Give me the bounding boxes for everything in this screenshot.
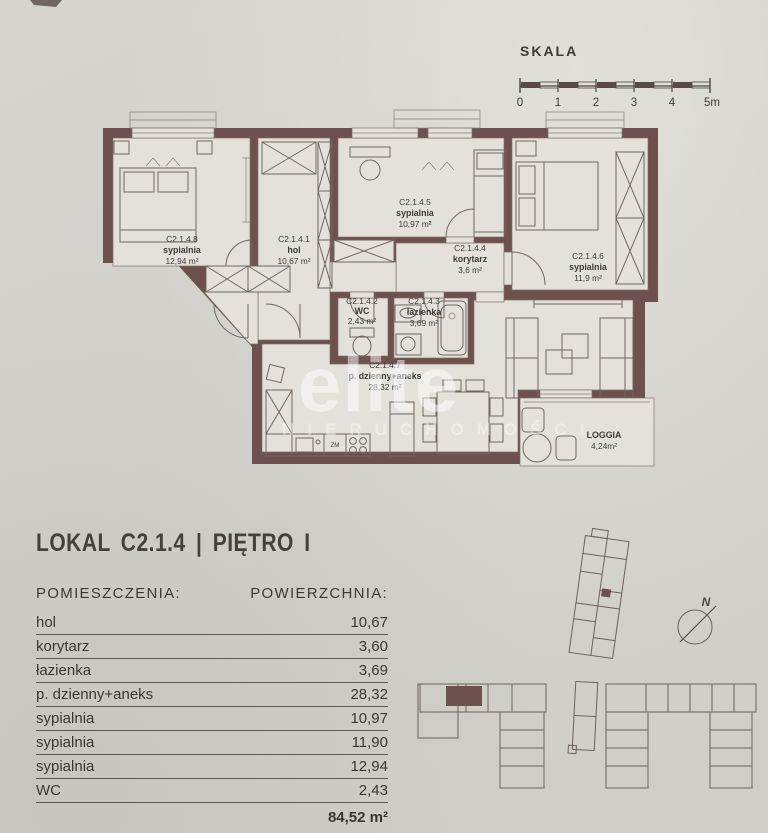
site-building-right — [606, 684, 756, 788]
room-id: C2.1.4.5 — [399, 197, 431, 207]
header-rooms: POMIESZCZENIA: — [36, 585, 181, 602]
floor-plan-sheet: SKALA 0 1 2 3 4 5m — [0, 0, 768, 833]
total-area: 84,52 m² — [36, 803, 388, 826]
scale-tick-3: 3 — [631, 97, 637, 109]
room-area-cell: 2,43 — [359, 782, 388, 799]
room-id: C2.1.4.7 — [369, 360, 401, 370]
table-row: WC 2,43 — [36, 779, 388, 803]
room-name: p. dzienny+aneks — [348, 371, 421, 381]
room-name-cell: hol — [36, 614, 56, 631]
room-area: 2,43 m² — [348, 316, 377, 326]
room-id: C2.1.4.2 — [346, 296, 378, 306]
room-area: 11,9 m² — [574, 273, 602, 283]
room-name: sypialnia — [569, 262, 607, 272]
table-row: łazienka 3,69 — [36, 659, 388, 683]
room-name-cell: sypialnia — [36, 734, 94, 751]
room-id: C2.1.4.4 — [454, 243, 486, 253]
north-label: N — [702, 595, 711, 609]
scale-tick-1: 1 — [555, 97, 561, 109]
room-name-cell: sypialnia — [36, 758, 94, 775]
table-header: POMIESZCZENIA: POWIERZCHNIA: — [36, 585, 388, 602]
north-arrow-icon: N — [678, 595, 716, 644]
table-row: sypialnia 10,97 — [36, 707, 388, 731]
scale-title: SKALA — [520, 43, 578, 59]
page-title: LOKAL C2.1.4 | PIĘTRO I — [36, 530, 311, 558]
room-name-cell: łazienka — [36, 662, 91, 679]
room-id: C2.1.4.1 — [278, 234, 310, 244]
dishwasher-label: ZM — [331, 442, 340, 449]
room-area: 10,67 m² — [277, 256, 310, 266]
table-row: korytarz 3,60 — [36, 635, 388, 659]
room-area-cell: 10,97 — [350, 710, 388, 727]
room-name: sypialnia — [396, 208, 434, 218]
room-name-cell: WC — [36, 782, 61, 799]
site-building-tall — [569, 528, 630, 659]
room-name: hol — [287, 245, 300, 255]
room-area-cell: 12,94 — [350, 758, 388, 775]
table-row: sypialnia 12,94 — [36, 755, 388, 779]
room-name-cell: p. dzienny+aneks — [36, 686, 153, 703]
loggia-area: 4,24m² — [591, 441, 617, 451]
room-name: sypialnia — [163, 245, 201, 255]
photo-edge-mark — [30, 0, 62, 7]
room-area: 12,94 m² — [165, 256, 198, 266]
room-id: C2.1.4.6 — [572, 251, 604, 261]
room-name-cell: korytarz — [36, 638, 89, 655]
room-area: 3,69 m² — [410, 318, 439, 328]
room-area-cell: 28,32 — [350, 686, 388, 703]
room-name: WC — [355, 306, 370, 316]
table-row: sypialnia 11,90 — [36, 731, 388, 755]
scale-tick-4: 4 — [669, 97, 676, 109]
area-table: POMIESZCZENIA: POWIERZCHNIA: hol 10,67 k… — [36, 585, 388, 826]
header-areas: POWIERZCHNIA: — [250, 585, 388, 602]
scale-bar: SKALA 0 1 2 3 4 5m — [517, 43, 720, 109]
room-name: łazienka — [407, 307, 441, 317]
site-plan: N — [418, 528, 756, 788]
room-area-cell: 11,90 — [352, 734, 388, 751]
scale-tick-0: 0 — [517, 97, 523, 109]
table-row: hol 10,67 — [36, 611, 388, 635]
room-name-cell: sypialnia — [36, 710, 94, 727]
room-area: 28,32 m² — [368, 382, 401, 392]
room-area-cell: 3,60 — [359, 638, 388, 655]
site-building-middle — [568, 681, 598, 754]
table-row: p. dzienny+aneks 28,32 — [36, 683, 388, 707]
room-area-cell: 3,69 — [359, 662, 388, 679]
upper-balcony-outlines — [130, 110, 624, 128]
site-building-left — [418, 684, 546, 788]
room-name: korytarz — [453, 254, 488, 264]
scale-tick-2: 2 — [593, 97, 599, 109]
room-id: C2.1.4.3 — [408, 296, 440, 306]
scale-tick-5: 5m — [704, 97, 720, 109]
room-id: C2.1.4.8 — [166, 234, 198, 244]
room-area: 3,6 m² — [458, 265, 482, 275]
room-area: 10,97 m² — [398, 219, 431, 229]
room-area-cell: 10,67 — [350, 614, 388, 631]
loggia-name: LOGGIA — [587, 430, 622, 440]
